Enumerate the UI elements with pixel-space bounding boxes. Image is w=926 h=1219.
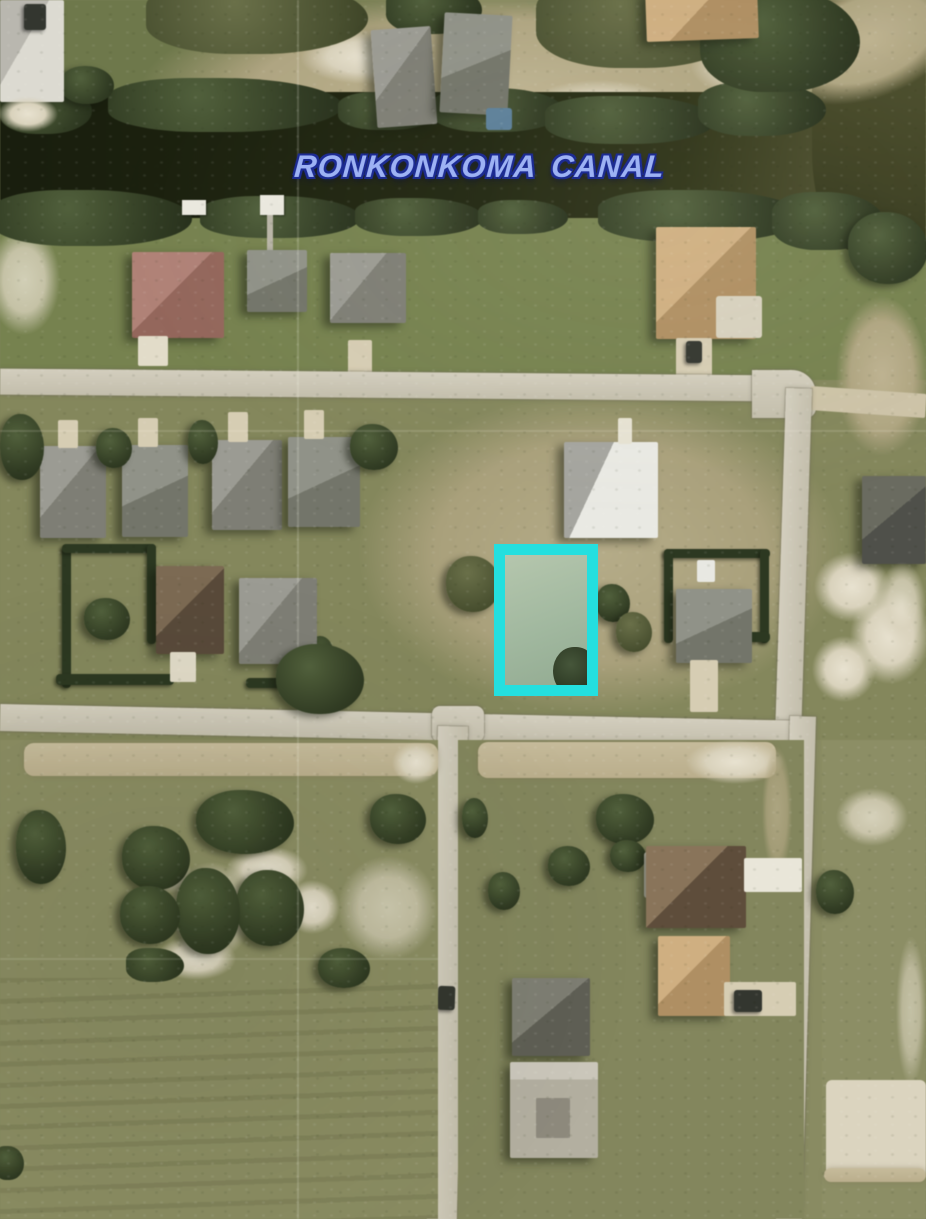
seam-line-horizontal xyxy=(0,430,926,432)
driveway xyxy=(58,420,78,448)
house-roof-dark-gray xyxy=(862,476,926,564)
sand-patch xyxy=(392,742,440,784)
sand-lot xyxy=(826,1080,926,1180)
car xyxy=(686,341,702,363)
dirt-line xyxy=(824,1168,926,1182)
house-roof-tan xyxy=(645,0,759,42)
tree xyxy=(96,428,132,468)
car xyxy=(438,986,456,1011)
house-roof-gray xyxy=(212,440,282,530)
tree xyxy=(122,826,190,890)
house-roof-brown xyxy=(646,846,746,928)
hedge xyxy=(56,674,174,685)
sand-patch xyxy=(338,856,438,960)
pool xyxy=(486,108,512,130)
tree xyxy=(188,420,218,464)
tree-row xyxy=(0,190,192,246)
tree xyxy=(0,414,44,480)
hedge xyxy=(147,544,156,644)
driveway xyxy=(138,336,168,366)
car xyxy=(734,990,762,1012)
house-courtyard xyxy=(536,1098,570,1138)
house-roof-gray xyxy=(512,978,590,1056)
tree xyxy=(126,948,184,982)
sand-patch xyxy=(836,788,908,846)
dirt-patch xyxy=(836,296,926,456)
tree xyxy=(236,870,304,946)
house-roof-white xyxy=(564,442,658,538)
hedge xyxy=(62,544,156,553)
hedge xyxy=(760,549,769,643)
house-roof-tan xyxy=(658,936,730,1016)
tree xyxy=(548,846,590,886)
driveway xyxy=(304,410,324,439)
dock xyxy=(260,195,284,215)
tree-cluster xyxy=(196,790,294,854)
mow-stripes xyxy=(0,978,438,1219)
dry-lot-patch xyxy=(358,392,844,714)
shed xyxy=(697,560,715,582)
tree xyxy=(84,598,130,640)
tree xyxy=(176,868,240,954)
tree xyxy=(120,886,180,944)
tree-row xyxy=(545,96,715,144)
house-roof-gray xyxy=(122,445,188,537)
driveway xyxy=(744,858,802,892)
house-roof-gray xyxy=(330,253,406,323)
house-roof-brown xyxy=(156,566,224,654)
driveway xyxy=(690,660,718,712)
tree-cluster xyxy=(596,794,654,844)
sand-patch xyxy=(896,936,926,1086)
driveway xyxy=(228,412,248,442)
house-roof-gray xyxy=(676,589,752,663)
tree xyxy=(610,840,646,872)
hedge xyxy=(62,546,71,688)
tree xyxy=(370,794,426,844)
house-roof-red xyxy=(132,252,224,338)
concrete-pad xyxy=(878,562,926,646)
tree xyxy=(60,66,114,104)
tree xyxy=(446,556,500,612)
tree xyxy=(616,612,652,652)
tree-row xyxy=(108,78,342,132)
tree xyxy=(553,647,597,696)
driveway xyxy=(138,418,158,447)
dock-pier xyxy=(267,215,273,251)
tree xyxy=(816,870,854,914)
aerial-photo: RONKONKOMA CANAL xyxy=(0,0,926,1219)
canal-label: RONKONKOMA CANAL xyxy=(292,149,695,195)
field-dirt-path xyxy=(24,743,438,776)
tree xyxy=(462,798,488,838)
house-roof-gray xyxy=(439,12,512,115)
tree xyxy=(16,810,66,884)
tree-cluster xyxy=(848,212,926,284)
driveway xyxy=(170,652,196,682)
pool-cage xyxy=(716,296,762,338)
house-roof-gray xyxy=(40,446,106,538)
car xyxy=(24,4,46,30)
house-roof-gray xyxy=(371,26,438,128)
driveway-pad xyxy=(0,96,58,132)
dock xyxy=(182,200,206,215)
hedge xyxy=(664,549,770,558)
sand-patch xyxy=(812,636,876,702)
tree-large xyxy=(276,644,364,714)
hedge xyxy=(664,549,673,643)
seam-line-horizontal xyxy=(0,958,438,960)
tree-row xyxy=(355,198,483,236)
tree-row xyxy=(478,200,568,234)
tree xyxy=(488,872,520,910)
highlighted-lot xyxy=(494,544,598,696)
